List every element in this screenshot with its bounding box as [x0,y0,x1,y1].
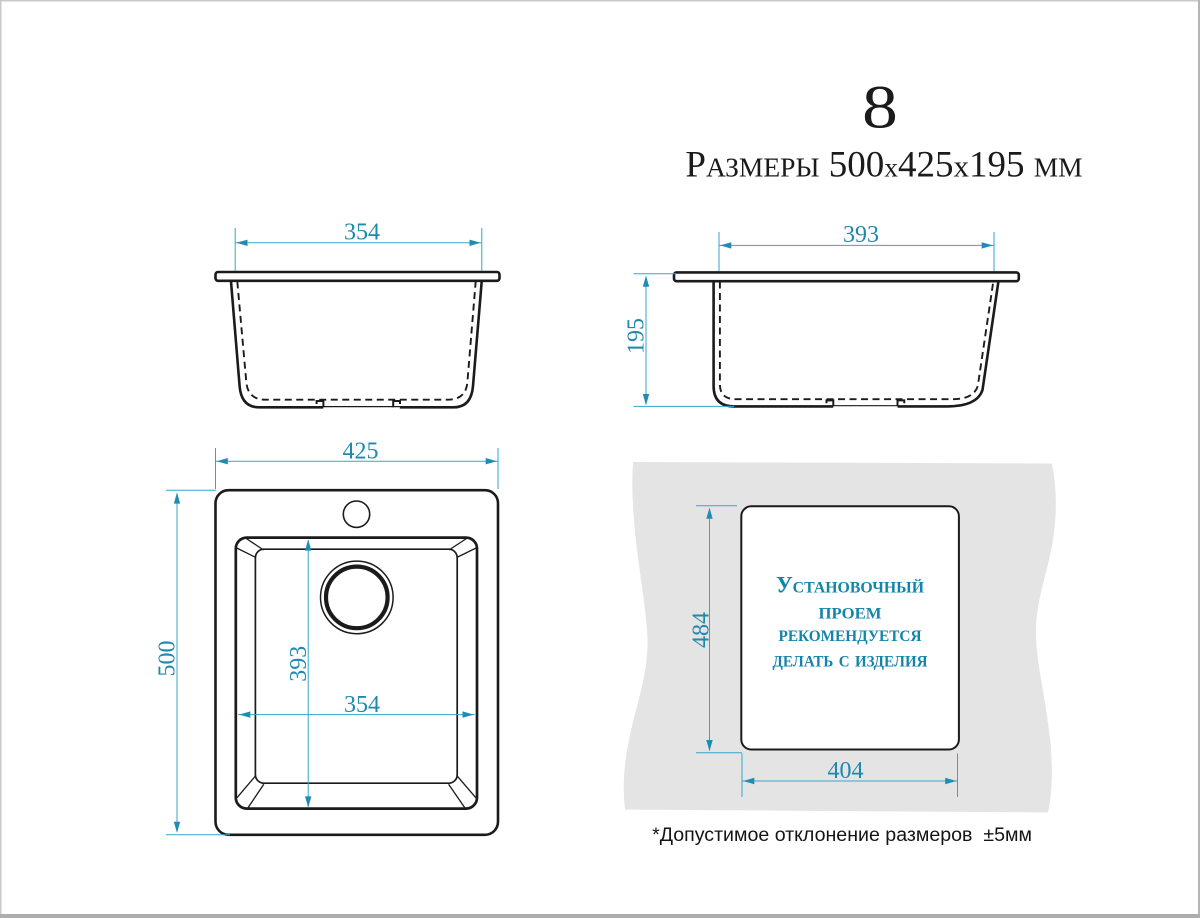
svg-text:393: 393 [843,222,879,248]
svg-text:8: 8 [862,74,898,141]
svg-text:393: 393 [286,646,312,682]
svg-text:500: 500 [155,641,181,677]
svg-text:РАЗМЕРЫ 500х425х195 ММ: РАЗМЕРЫ 500х425х195 ММ [685,145,1082,186]
svg-text:делать с изделия: делать с изделия [773,647,928,672]
svg-text:354: 354 [344,220,380,246]
svg-text:354: 354 [344,692,380,718]
svg-text:Установочный: Установочный [776,573,925,598]
svg-text:484: 484 [688,612,714,648]
svg-text:*Допустимое отклонение размеро: *Допустимое отклонение размеров ±5мм [652,824,1032,846]
svg-text:425: 425 [343,439,379,465]
svg-text:рекомендуется: рекомендуется [779,621,922,646]
svg-text:проем: проем [819,599,882,624]
svg-text:404: 404 [828,758,864,784]
svg-text:195: 195 [624,318,650,354]
